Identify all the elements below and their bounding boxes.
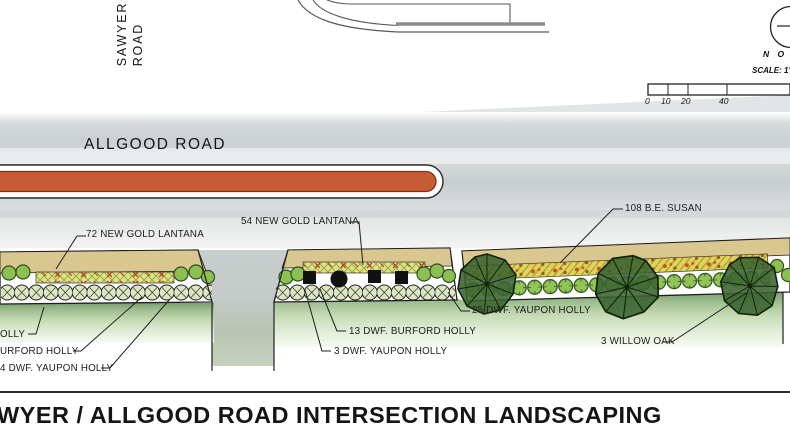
yaupon-holly-symbol — [331, 271, 348, 288]
grass-left — [0, 303, 214, 343]
scale-bar — [648, 84, 790, 95]
sawyer-road-line1: SAWYER — [114, 2, 130, 67]
left-planting-bed — [0, 250, 215, 304]
scale-tick-10: 10 — [661, 96, 670, 106]
scale-tick-20: 20 — [681, 96, 690, 106]
label-cut-yaupon: 4 DWF. YAUPON HOLLY — [0, 363, 113, 374]
gold-lantana-band — [36, 272, 174, 283]
label-yaupon-3: 3 DWF. YAUPON HOLLY — [334, 346, 447, 357]
scale-tick-40: 40 — [719, 96, 728, 106]
sawyer-road-line2: ROAD — [130, 2, 146, 67]
label-lantana-54: 54 NEW GOLD LANTANA — [241, 216, 359, 227]
landscape-plan-sheet: SAWYER ROAD ALLGOOD ROAD N O R SCALE: 1"… — [0, 0, 790, 440]
title-divider — [0, 391, 790, 393]
middle-planting-bed — [274, 248, 457, 302]
label-burford-13: 13 DWF. BURFORD HOLLY — [349, 326, 476, 337]
median-planting-strip — [0, 172, 436, 192]
allgood-road-label: ALLGOOD ROAD — [84, 136, 226, 154]
yaupon-holly-row — [1, 284, 212, 301]
label-cut-burford: URFORD HOLLY — [0, 346, 78, 357]
median-island — [0, 165, 443, 198]
north-arrow — [771, 7, 790, 48]
scale-label: SCALE: 1" — [752, 66, 790, 75]
scale-tick-0: 0 — [645, 96, 650, 106]
sheet-title: WYER / ALLGOOD ROAD INTERSECTION LANDSCA… — [0, 402, 662, 429]
north-label: N O R — [763, 49, 790, 59]
sawyer-road-curve — [298, 0, 549, 32]
yaupon-holly-row — [276, 284, 455, 301]
label-susan-108: 108 B.E. SUSAN — [625, 203, 702, 214]
label-willow-oak-3: 3 WILLOW OAK — [601, 336, 675, 347]
label-cut-holly: OLLY — [0, 329, 25, 340]
label-yaupon-25: 25 DWF. YAUPON HOLLY — [472, 305, 591, 316]
label-lantana-72: 72 NEW GOLD LANTANA — [86, 229, 204, 240]
sawyer-road-label: SAWYER ROAD — [90, 0, 170, 74]
